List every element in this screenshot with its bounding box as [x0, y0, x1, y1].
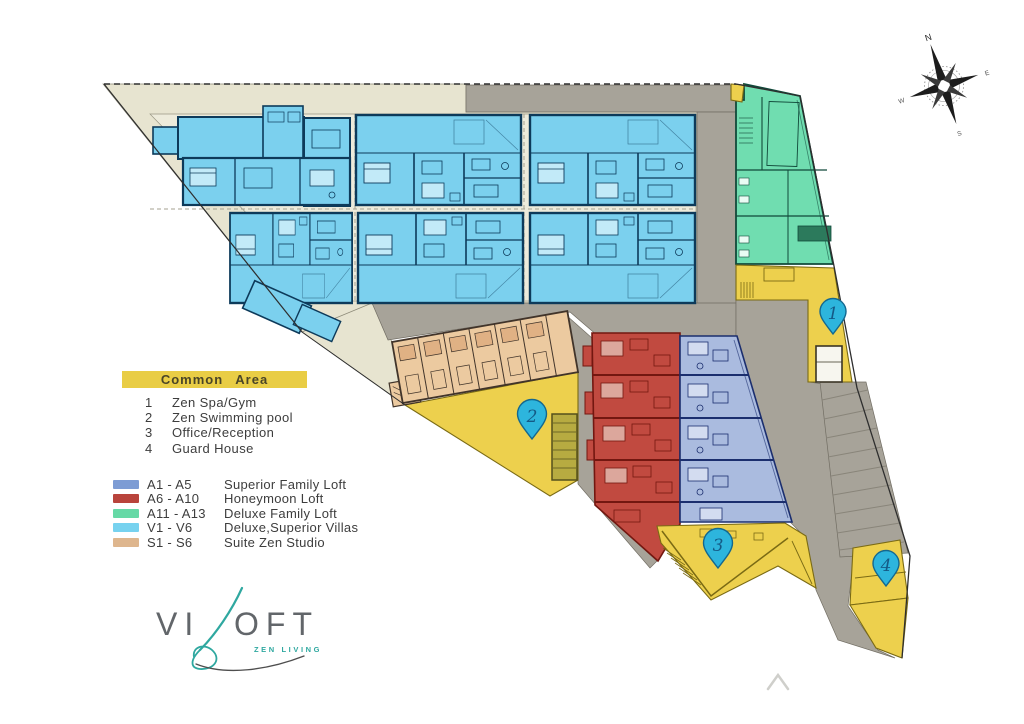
legend-item-guard: 4 Guard House [122, 441, 352, 456]
swimming-pool [552, 414, 577, 480]
common-area-title: Common Area [122, 371, 307, 388]
unit-legend-row-suite-studio: S1 - S6 Suite Zen Studio [113, 535, 413, 550]
logo-text-prefix: VI [156, 606, 200, 643]
legend-item-number: 2 [122, 410, 172, 425]
unit-legend-row-superior-family: A1 - A5 Superior Family Loft [113, 477, 413, 492]
unit-label: Suite Zen Studio [224, 535, 325, 550]
yellow-corner-patch [731, 84, 744, 102]
unit-code: A6 - A10 [147, 491, 224, 506]
villa-block-v6 [530, 213, 695, 303]
site-plan-page: N E S W 1 2 3 4 Common Area 1 Zen Spa/Gy… [0, 0, 1024, 724]
road-chevron-mark [768, 675, 788, 689]
unit-label: Deluxe,Superior Villas [224, 520, 358, 535]
unit-code: V1 - V6 [147, 520, 224, 535]
unit-code: A11 - A13 [147, 506, 224, 521]
legend-item-label: Zen Spa/Gym [172, 395, 257, 410]
unit-label: Superior Family Loft [224, 477, 346, 492]
villa-block-v1 [153, 106, 350, 206]
common-area-list: 1 Zen Spa/Gym 2 Zen Swimming pool 3 Offi… [122, 395, 352, 456]
svg-text:2: 2 [526, 407, 538, 427]
legend-item-number: 3 [122, 425, 172, 440]
compass-south-label: S [956, 130, 963, 138]
legend-item-number: 1 [122, 395, 172, 410]
legend-item-label: Guard House [172, 441, 254, 456]
color-swatch [113, 480, 139, 489]
unit-code: A1 - A5 [147, 477, 224, 492]
legend-item-number: 4 [122, 441, 172, 456]
color-swatch [113, 523, 139, 532]
legend-item-label: Office/Reception [172, 425, 274, 440]
svg-text:1: 1 [828, 304, 839, 324]
legend-item-label: Zen Swimming pool [172, 410, 293, 425]
unit-legend-row-honeymoon: A6 - A10 Honeymoon Loft [113, 492, 413, 507]
svg-text:4: 4 [880, 556, 892, 576]
compass-west-label: W [898, 97, 907, 106]
unit-code: S1 - S6 [147, 535, 224, 550]
unit-legend-row-deluxe-family: A11 - A13 Deluxe Family Loft [113, 506, 413, 521]
office-reception-area [657, 523, 816, 600]
villa-block-v2 [356, 115, 521, 205]
villa-block-v3 [530, 115, 695, 205]
unit-label: Honeymoon Loft [224, 491, 324, 506]
legend-item-spa: 1 Zen Spa/Gym [122, 395, 352, 410]
color-swatch [113, 494, 139, 503]
villa-block-v5 [358, 213, 523, 303]
unit-type-legend: A1 - A5 Superior Family Loft A6 - A10 Ho… [113, 477, 413, 550]
color-swatch [113, 538, 139, 547]
logo-tagline: ZEN LIVING [254, 645, 322, 654]
unit-legend-row-villas: V1 - V6 Deluxe,Superior Villas [113, 521, 413, 536]
villa-block-v4 [230, 213, 352, 303]
legend-item-office: 3 Office/Reception [122, 425, 352, 440]
svg-text:3: 3 [713, 536, 724, 556]
unit-label: Deluxe Family Loft [224, 506, 337, 521]
brand-logo: VI OFT ZEN LIVING [150, 592, 360, 684]
deluxe-family-loft-building [736, 84, 833, 264]
logo-text-suffix: OFT [234, 606, 319, 643]
color-swatch [113, 509, 139, 518]
compass-north-label: N [924, 32, 933, 44]
compass-rose: N E S W [881, 18, 1006, 152]
common-area-legend: Common Area 1 Zen Spa/Gym 2 Zen Swimming… [122, 371, 352, 456]
compass-east-label: E [984, 69, 991, 77]
legend-item-pool: 2 Zen Swimming pool [122, 410, 352, 425]
